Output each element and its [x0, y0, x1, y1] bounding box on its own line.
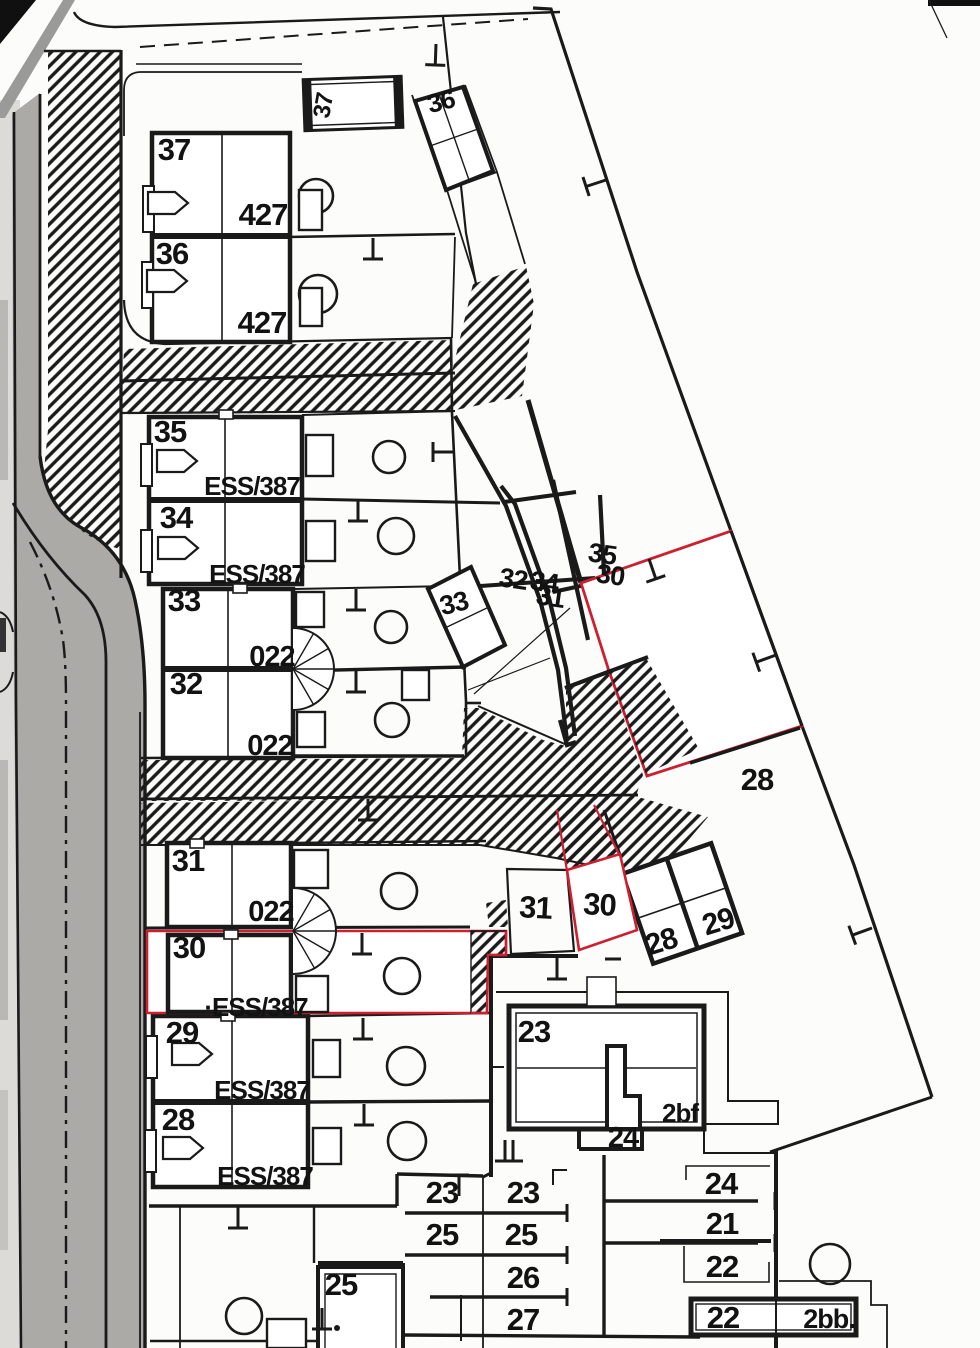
- svg-text:28: 28: [741, 762, 774, 797]
- svg-text:23: 23: [426, 1175, 459, 1210]
- svg-text:30: 30: [173, 930, 205, 965]
- svg-text:25: 25: [505, 1217, 538, 1252]
- svg-text:2bb.: 2bb.: [803, 1304, 855, 1334]
- svg-text:ESS/387: ESS/387: [217, 1161, 313, 1191]
- svg-text:2bf: 2bf: [662, 1098, 699, 1128]
- svg-text:427: 427: [239, 197, 288, 232]
- svg-text:427: 427: [238, 305, 287, 340]
- svg-text:ESS/387: ESS/387: [204, 471, 300, 501]
- svg-text:27: 27: [507, 1302, 539, 1337]
- svg-text:23: 23: [507, 1175, 540, 1210]
- svg-text:32: 32: [497, 562, 529, 596]
- svg-text:33: 33: [168, 583, 201, 618]
- svg-text:21: 21: [706, 1206, 739, 1241]
- svg-text:31: 31: [534, 580, 567, 614]
- svg-text:022: 022: [247, 730, 292, 762]
- svg-text:24: 24: [705, 1166, 739, 1201]
- svg-text:30: 30: [582, 886, 616, 923]
- svg-text:30: 30: [594, 558, 626, 592]
- svg-text:34: 34: [160, 500, 194, 535]
- svg-text:31: 31: [518, 889, 553, 926]
- svg-text:35: 35: [154, 414, 187, 449]
- svg-text:022: 022: [248, 896, 293, 928]
- svg-text:022: 022: [249, 641, 294, 673]
- svg-text:25: 25: [325, 1267, 358, 1302]
- svg-text:22: 22: [707, 1300, 739, 1335]
- svg-text:25: 25: [426, 1217, 459, 1252]
- svg-text:·ESS/387: ·ESS/387: [204, 992, 308, 1022]
- svg-text:22: 22: [706, 1249, 738, 1284]
- svg-text:37: 37: [158, 132, 190, 167]
- svg-text:23: 23: [518, 1014, 551, 1049]
- svg-text:29: 29: [166, 1015, 199, 1050]
- svg-text:24: 24: [608, 1122, 639, 1154]
- svg-text:31: 31: [172, 843, 205, 878]
- svg-text:ESS/387: ESS/387: [209, 559, 305, 589]
- svg-text:32: 32: [170, 666, 202, 701]
- svg-text:36: 36: [156, 236, 189, 271]
- svg-text:ESS/387: ESS/387: [214, 1075, 310, 1105]
- svg-text:28: 28: [162, 1102, 195, 1137]
- svg-text:26: 26: [507, 1260, 540, 1295]
